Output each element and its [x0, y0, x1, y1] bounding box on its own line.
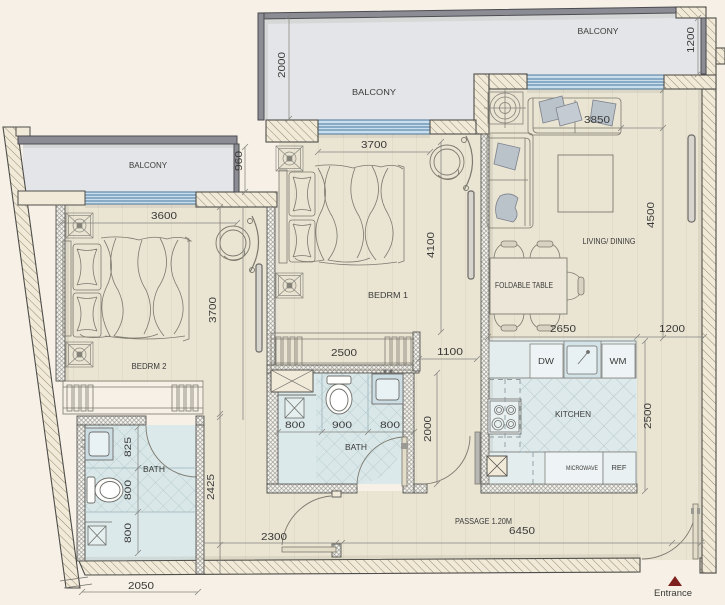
svg-text:LIVING/ DINING: LIVING/ DINING — [583, 236, 636, 246]
svg-text:2000: 2000 — [277, 51, 288, 78]
svg-text:WM: WM — [610, 357, 627, 366]
svg-text:1200: 1200 — [686, 26, 697, 53]
svg-text:BATH: BATH — [143, 465, 165, 474]
svg-text:PASSAGE 1.20M: PASSAGE 1.20M — [455, 517, 512, 526]
svg-text:2050: 2050 — [128, 581, 155, 592]
svg-text:3700: 3700 — [208, 296, 219, 323]
svg-text:3700: 3700 — [361, 140, 388, 151]
svg-text:DW: DW — [538, 357, 555, 366]
svg-text:800: 800 — [285, 420, 305, 431]
svg-text:2425: 2425 — [206, 473, 217, 500]
svg-text:Entrance: Entrance — [654, 588, 692, 599]
svg-text:2500: 2500 — [643, 402, 654, 429]
svg-text:MICROWAVE: MICROWAVE — [566, 466, 598, 472]
svg-text:REF: REF — [612, 463, 627, 472]
svg-text:1100: 1100 — [437, 347, 464, 358]
svg-text:3850: 3850 — [584, 115, 611, 126]
svg-text:2500: 2500 — [331, 348, 358, 359]
svg-text:4100: 4100 — [426, 231, 437, 258]
svg-text:FOLDABLE TABLE: FOLDABLE TABLE — [495, 281, 553, 290]
svg-text:900: 900 — [332, 420, 352, 431]
svg-text:960: 960 — [234, 150, 245, 171]
svg-text:BALCONY: BALCONY — [352, 87, 396, 97]
svg-text:BALCONY: BALCONY — [578, 26, 619, 36]
svg-text:BEDRM 1: BEDRM 1 — [368, 290, 408, 300]
svg-text:2650: 2650 — [550, 324, 577, 335]
svg-text:2000: 2000 — [423, 415, 434, 442]
svg-text:BALCONY: BALCONY — [129, 160, 167, 170]
svg-text:3600: 3600 — [151, 211, 178, 222]
svg-text:800: 800 — [380, 420, 400, 431]
svg-text:800: 800 — [123, 480, 134, 500]
svg-text:825: 825 — [123, 437, 134, 457]
svg-text:KITCHEN: KITCHEN — [555, 409, 591, 419]
svg-text:BEDRM 2: BEDRM 2 — [132, 361, 167, 371]
svg-text:1200: 1200 — [659, 324, 686, 335]
svg-text:800: 800 — [123, 523, 134, 543]
svg-text:BATH: BATH — [345, 443, 367, 452]
svg-text:2300: 2300 — [261, 532, 288, 543]
svg-text:4500: 4500 — [646, 201, 657, 228]
svg-text:6450: 6450 — [509, 526, 536, 537]
